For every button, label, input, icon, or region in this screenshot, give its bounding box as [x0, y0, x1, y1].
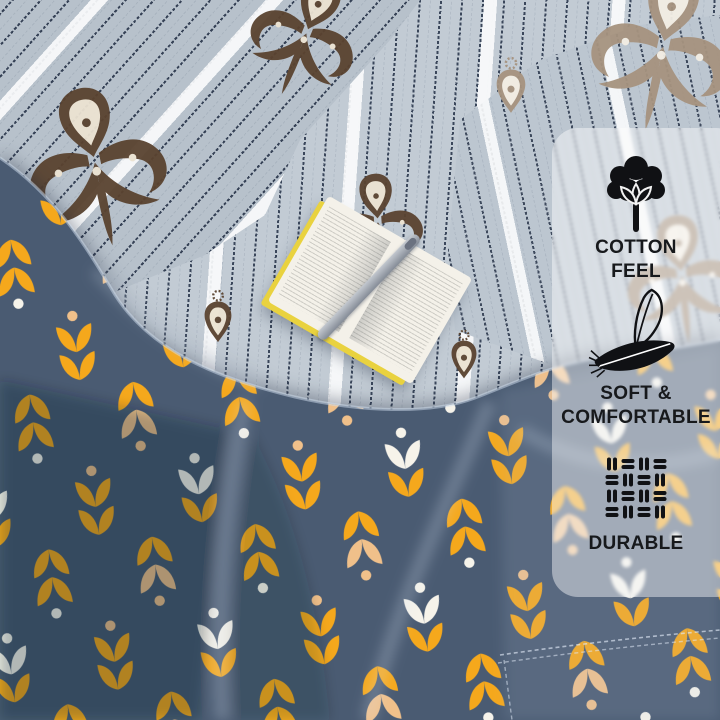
product-photo-bedding: { "badges": [ { "icon": "cotton-icon", "…	[0, 0, 720, 720]
badge-label: COTTONFEEL	[595, 236, 677, 284]
feather-icon	[587, 286, 685, 380]
feature-panel: COTTONFEEL SOFT &COMFORTABLE	[552, 128, 720, 597]
badge-durable: DURABLE	[589, 456, 684, 556]
cotton-icon	[605, 154, 667, 234]
badge-cotton-feel: COTTONFEEL	[595, 154, 677, 284]
badge-soft-comfortable: SOFT &COMFORTABLE	[561, 286, 711, 430]
badge-label: SOFT &COMFORTABLE	[561, 382, 711, 430]
weave-icon	[604, 456, 668, 520]
badge-label: DURABLE	[589, 532, 684, 556]
